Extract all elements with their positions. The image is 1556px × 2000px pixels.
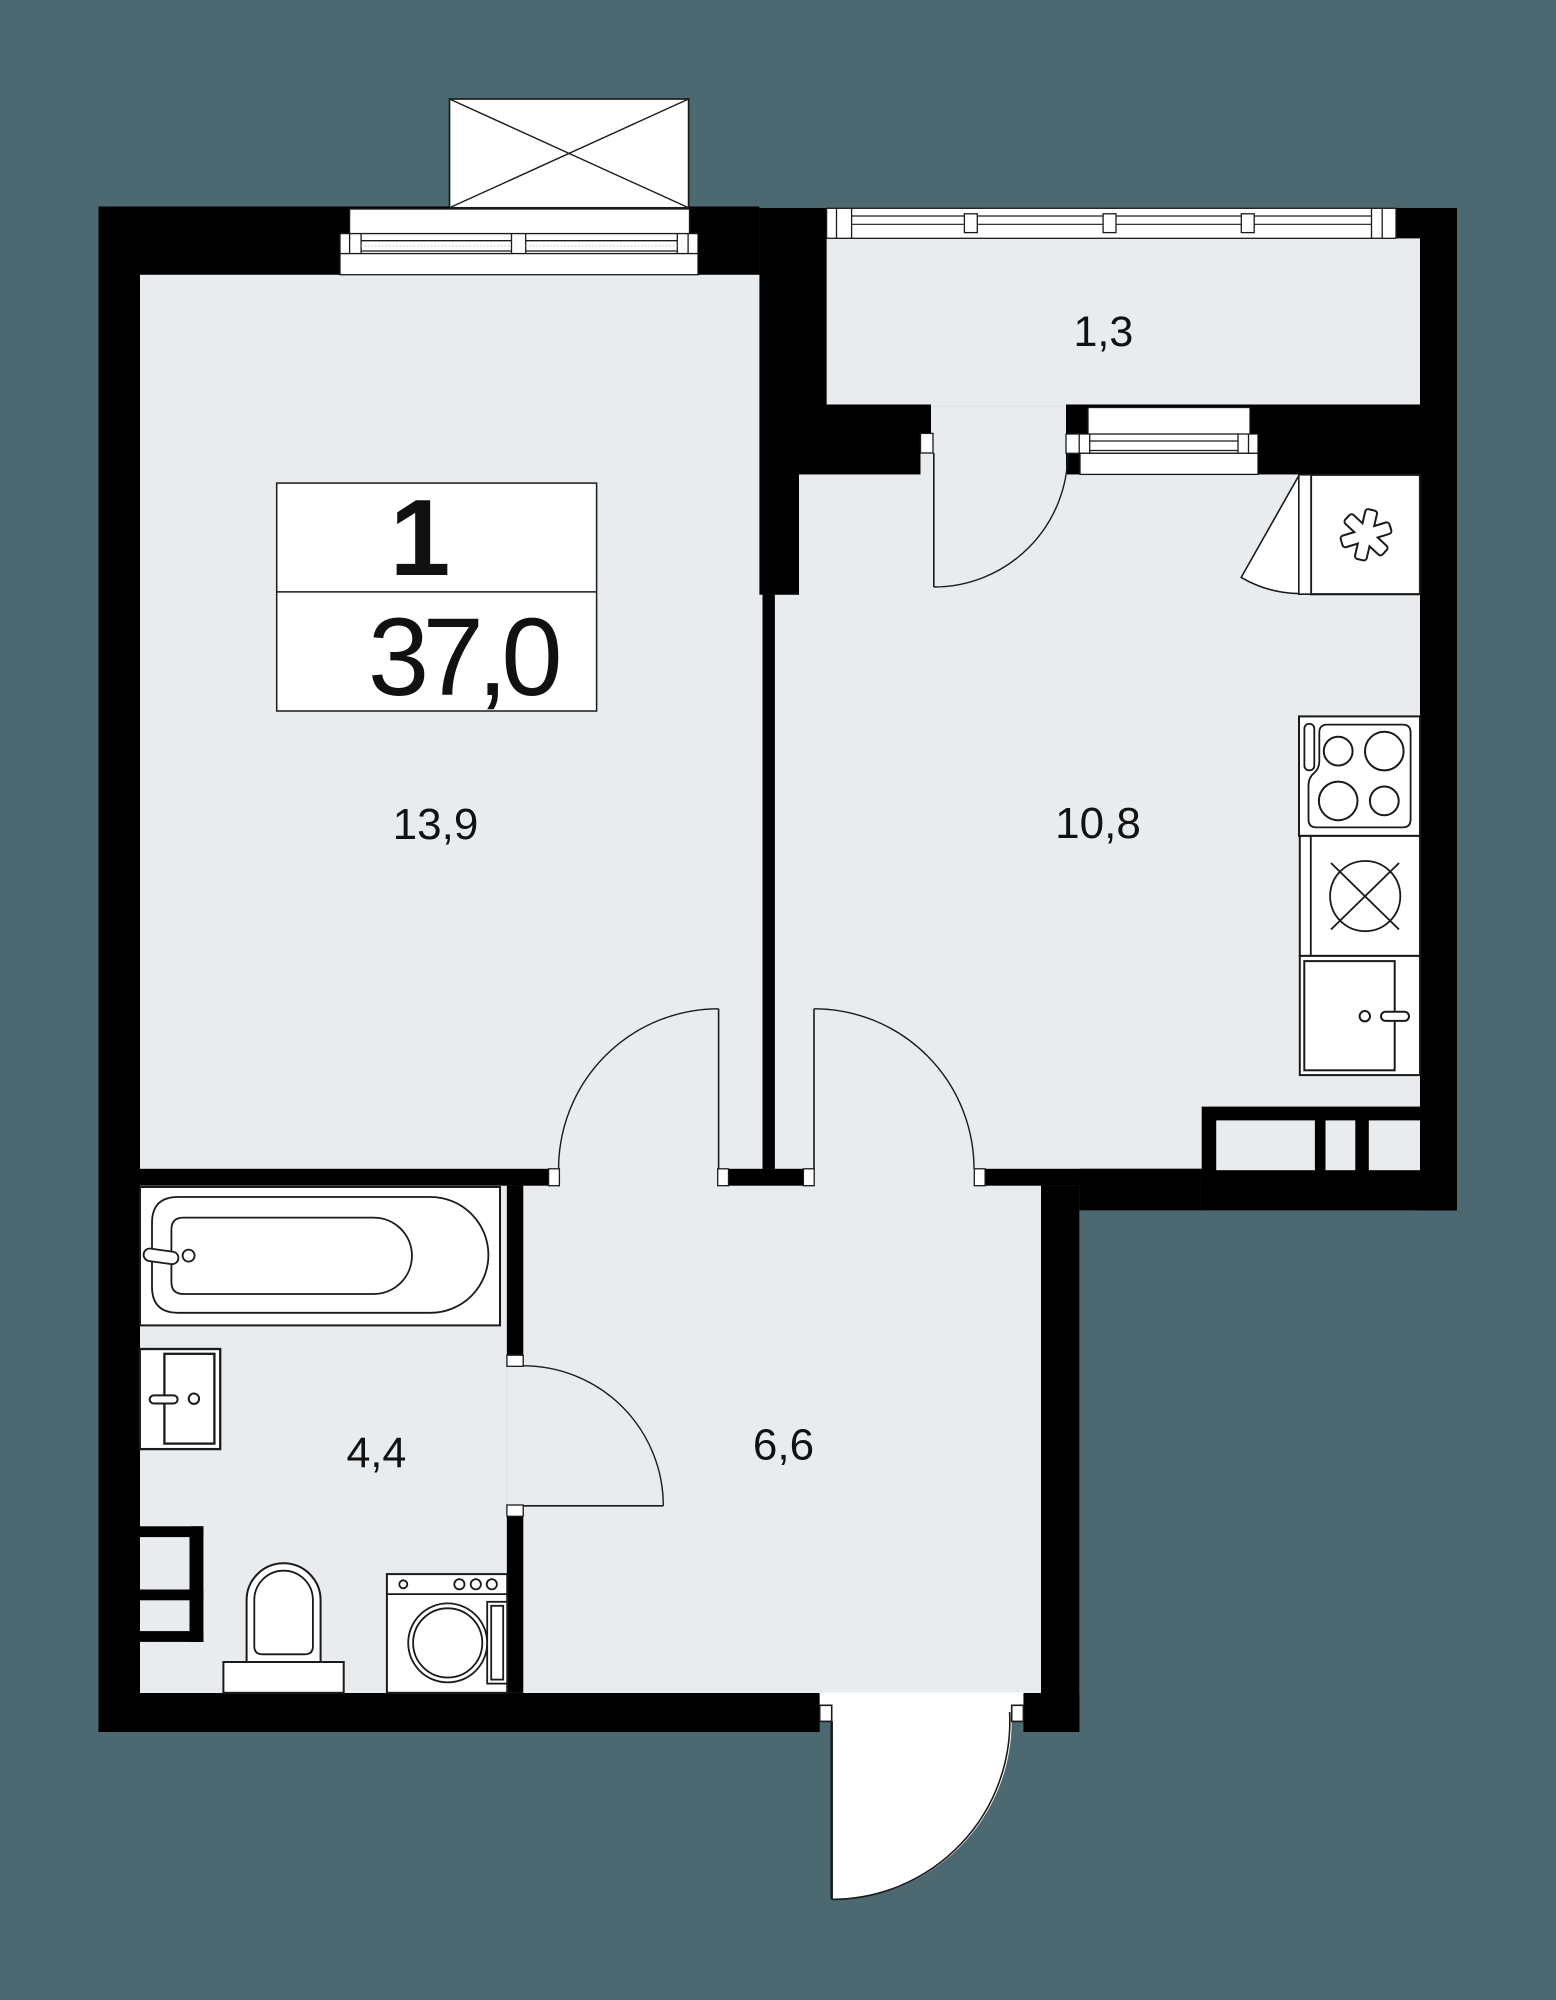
svg-text:1,3: 1,3 bbox=[1074, 308, 1134, 356]
svg-text:10,8: 10,8 bbox=[1055, 799, 1141, 848]
svg-text:13,9: 13,9 bbox=[393, 800, 479, 849]
svg-text:1: 1 bbox=[390, 477, 451, 599]
svg-text:4,4: 4,4 bbox=[347, 1429, 407, 1477]
svg-text:37,0: 37,0 bbox=[368, 596, 558, 719]
svg-text:6,6: 6,6 bbox=[753, 1420, 814, 1469]
